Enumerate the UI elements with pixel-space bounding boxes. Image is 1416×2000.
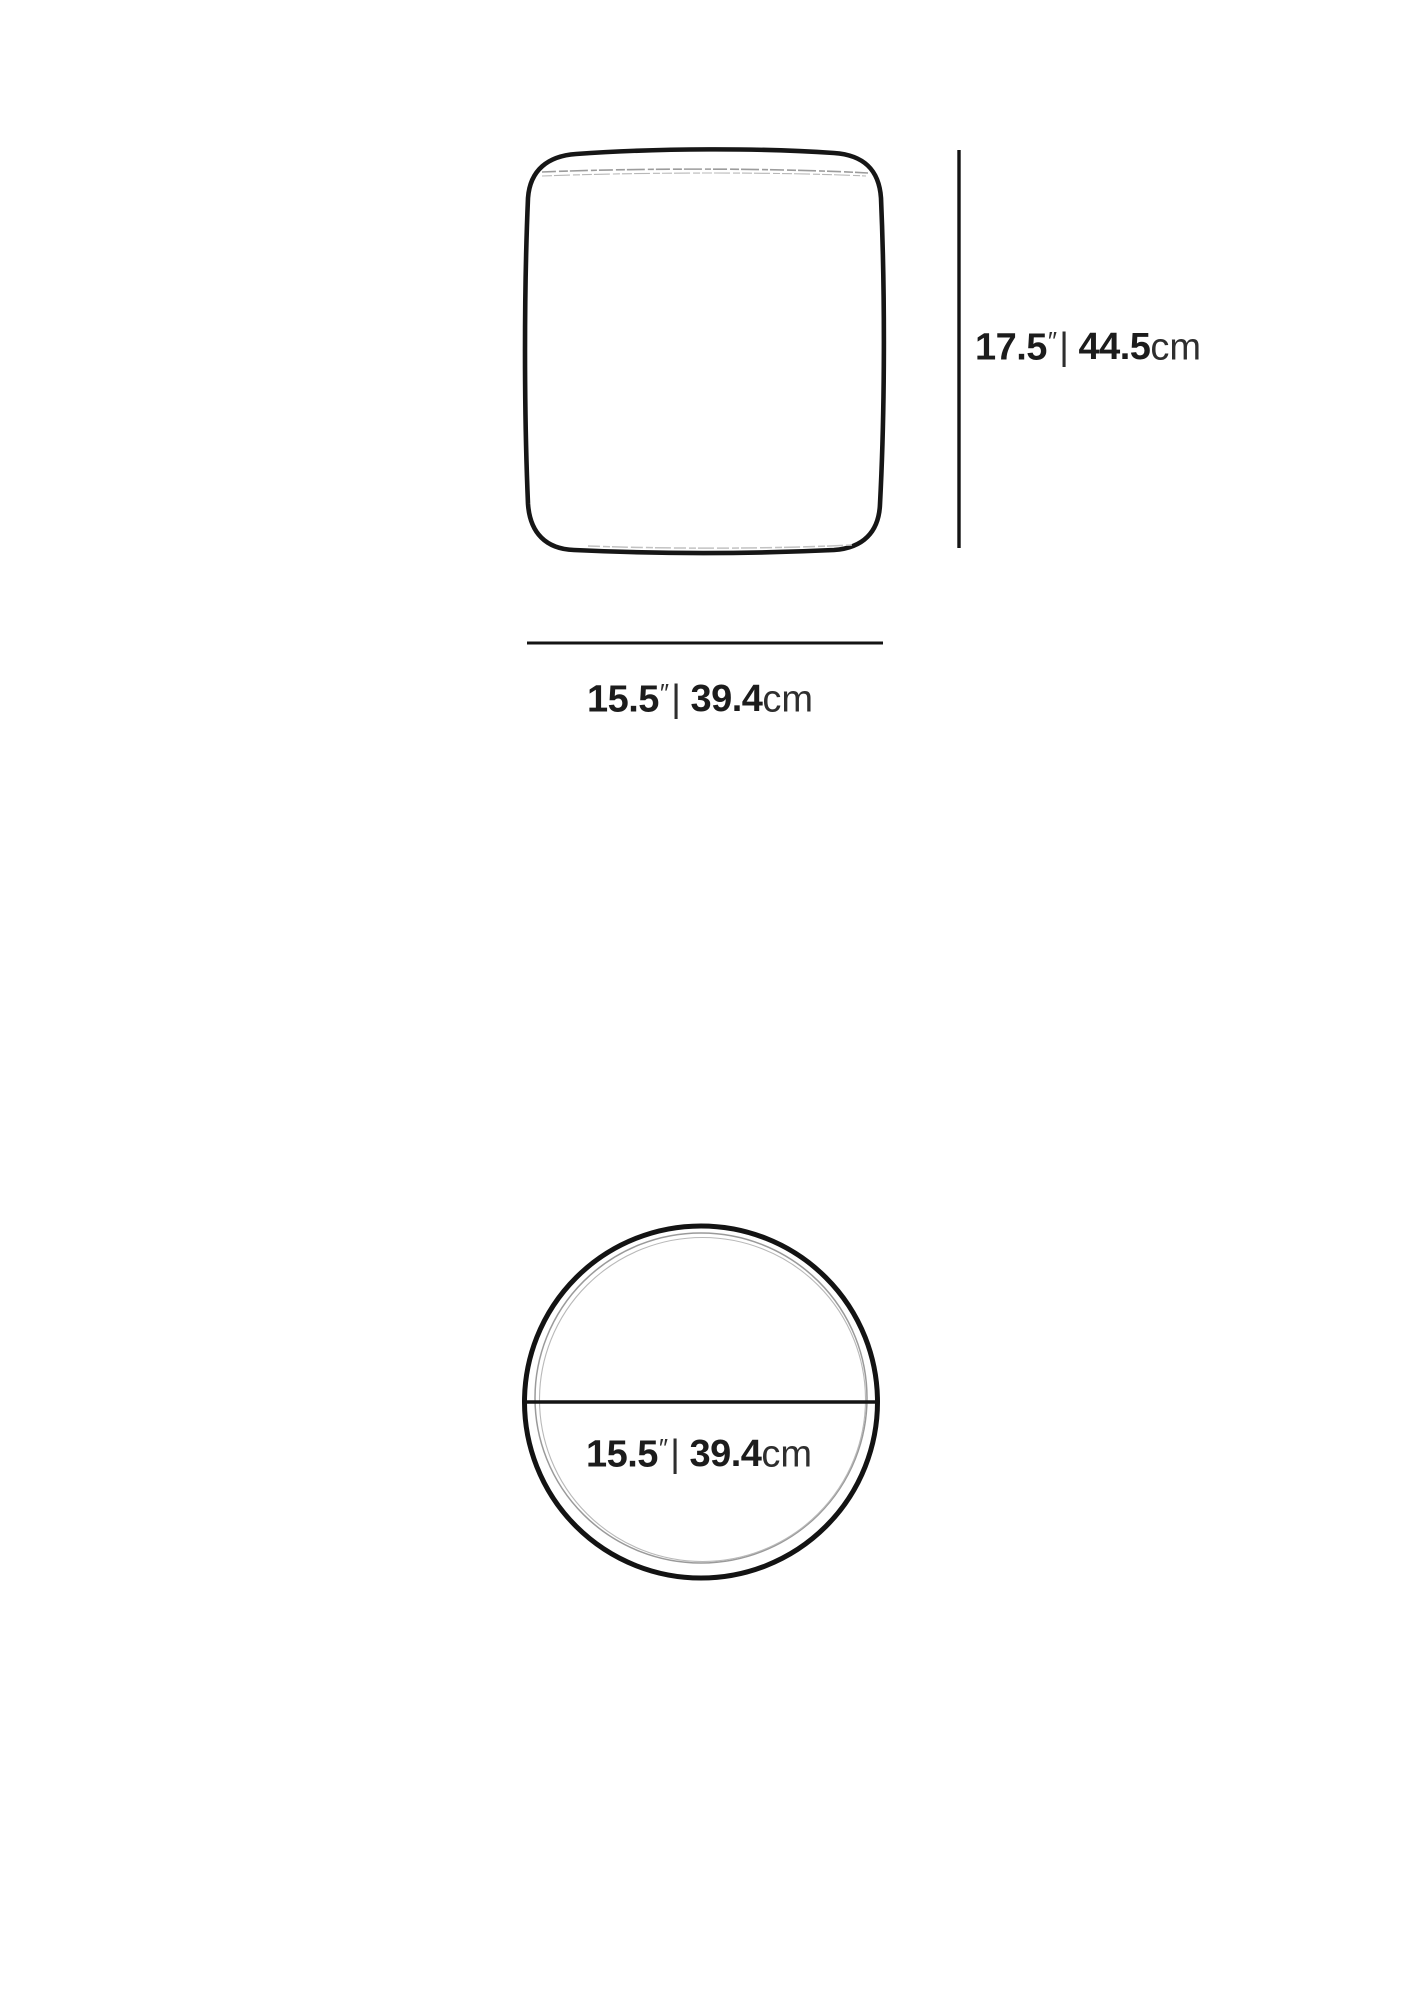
- front-view-bottom-stitch-line: [588, 545, 852, 548]
- height-metric-value: 44.5: [1070, 326, 1150, 368]
- diameter-dimension-label: 15.5″|39.4cm: [586, 1429, 812, 1474]
- diameter-unit: cm: [761, 1433, 812, 1475]
- height-unit: cm: [1150, 326, 1201, 368]
- front-view-top-stitch-line: [542, 169, 868, 173]
- inch-mark: ″: [1047, 328, 1055, 356]
- label-separator: |: [667, 678, 682, 720]
- top-view-seam-line: [535, 1233, 867, 1563]
- label-separator: |: [1055, 326, 1070, 368]
- width-metric-value: 39.4: [682, 678, 762, 720]
- diameter-imperial-value: 15.5: [586, 1433, 658, 1475]
- height-dimension-label: 17.5″|44.5cm: [975, 322, 1201, 367]
- top-view-seam-line-2: [540, 1238, 866, 1562]
- label-separator: |: [666, 1433, 681, 1475]
- width-dimension-label: 15.5″|39.4cm: [587, 674, 813, 719]
- width-imperial-value: 15.5: [587, 678, 659, 720]
- front-view-top-stitch-line-2: [542, 173, 866, 176]
- inch-mark: ″: [658, 1435, 666, 1463]
- inch-mark: ″: [659, 680, 667, 708]
- diagram-artwork: [0, 0, 1416, 2000]
- width-unit: cm: [762, 678, 813, 720]
- dimensions-diagram: 17.5″|44.5cm 15.5″|39.4cm 15.5″|39.4cm: [0, 0, 1416, 2000]
- front-view-outline: [525, 149, 884, 553]
- diameter-metric-value: 39.4: [681, 1433, 761, 1475]
- height-imperial-value: 17.5: [975, 326, 1047, 368]
